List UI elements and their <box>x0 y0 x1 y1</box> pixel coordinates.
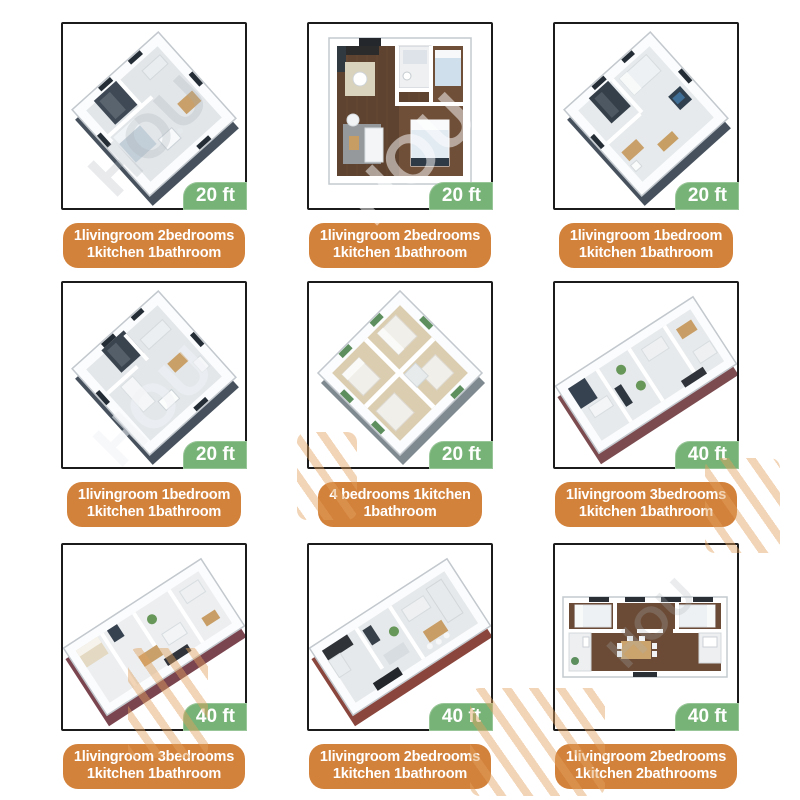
description-line: 1livingroom 2bedrooms <box>74 228 234 244</box>
description-line: 1kitchen 1bathroom <box>87 504 221 520</box>
floorplan-illustration <box>555 24 737 208</box>
size-badge: 20 ft <box>183 182 247 210</box>
room-description-label: 1livingroom 2bedrooms 1kitchen 2bathroom… <box>555 744 737 789</box>
room-description-label: 4 bedrooms 1kitchen 1bathroom <box>318 482 481 527</box>
description-line: 1kitchen 2bathrooms <box>575 766 717 782</box>
description-line: 1kitchen 1bathroom <box>579 245 713 261</box>
floorplan-image[interactable]: 20 ft <box>307 281 493 469</box>
floorplan-card: 20 ft 1livingroom 2bedrooms 1kitchen 1ba… <box>61 22 247 268</box>
description-line: 1kitchen 1bathroom <box>87 766 221 782</box>
floorplan-illustration <box>63 24 245 208</box>
floorplan-card: 40 ft 1livingroom 3bedrooms 1kitchen 1ba… <box>61 543 247 789</box>
room-description-label: 1livingroom 1bedroom 1kitchen 1bathroom <box>559 223 733 268</box>
description-line: 1livingroom 2bedrooms <box>320 749 480 765</box>
description-line: 1livingroom 3bedrooms <box>566 487 726 503</box>
description-line: 1livingroom 1bedroom <box>570 228 722 244</box>
description-line: 1bathroom <box>363 504 436 520</box>
description-line: 1kitchen 1bathroom <box>579 504 713 520</box>
floorplan-image[interactable]: 40 ft <box>553 543 739 731</box>
floorplan-image[interactable]: 40 ft <box>307 543 493 731</box>
floorplan-card: 20 ft 1livingroom 1bedroom 1kitchen 1bat… <box>61 281 247 527</box>
size-badge: 40 ft <box>675 441 739 469</box>
floorplan-card: 40 ft 1livingroom 2bedrooms 1kitchen 2ba… <box>553 543 739 789</box>
floorplan-image[interactable]: 40 ft <box>61 543 247 731</box>
room-description-label: 1livingroom 3bedrooms 1kitchen 1bathroom <box>555 482 737 527</box>
description-line: 4 bedrooms 1kitchen <box>329 487 470 503</box>
room-description-label: 1livingroom 2bedrooms 1kitchen 1bathroom <box>309 744 491 789</box>
floorplan-illustration <box>309 545 491 729</box>
floorplan-illustration <box>309 24 491 208</box>
room-description-label: 1livingroom 3bedrooms 1kitchen 1bathroom <box>63 744 245 789</box>
floorplan-illustration <box>309 283 491 467</box>
size-badge: 20 ft <box>183 441 247 469</box>
description-line: 1kitchen 1bathroom <box>333 245 467 261</box>
description-line: 1livingroom 2bedrooms <box>320 228 480 244</box>
size-badge: 20 ft <box>675 182 739 210</box>
description-line: 1kitchen 1bathroom <box>87 245 221 261</box>
size-badge: 40 ft <box>429 703 493 731</box>
size-badge: 20 ft <box>429 182 493 210</box>
floorplan-image[interactable]: 20 ft <box>553 22 739 210</box>
floorplan-illustration <box>555 545 737 729</box>
floorplan-image[interactable]: 20 ft <box>61 281 247 469</box>
room-description-label: 1livingroom 1bedroom 1kitchen 1bathroom <box>67 482 241 527</box>
floorplan-image[interactable]: 20 ft <box>307 22 493 210</box>
floorplan-card: 20 ft 1livingroom 2bedrooms 1kitchen 1ba… <box>307 22 493 268</box>
floorplan-card: 20 ft 4 bedrooms 1kitchen 1bathroom <box>307 281 493 527</box>
floorplan-gallery: HOU HOU HOU HOU 20 ft 1livingroom 2bedro… <box>0 0 800 800</box>
floorplan-image[interactable]: 40 ft <box>553 281 739 469</box>
floorplan-card: 40 ft 1livingroom 2bedrooms 1kitchen 1ba… <box>307 543 493 789</box>
floorplan-illustration <box>555 283 737 467</box>
floorplan-card: 20 ft 1livingroom 1bedroom 1kitchen 1bat… <box>553 22 739 268</box>
description-line: 1kitchen 1bathroom <box>333 766 467 782</box>
size-badge: 20 ft <box>429 441 493 469</box>
floorplan-image[interactable]: 20 ft <box>61 22 247 210</box>
room-description-label: 1livingroom 2bedrooms 1kitchen 1bathroom <box>63 223 245 268</box>
description-line: 1livingroom 2bedrooms <box>566 749 726 765</box>
size-badge: 40 ft <box>675 703 739 731</box>
floorplan-illustration <box>63 283 245 467</box>
floorplan-card: 40 ft 1livingroom 3bedrooms 1kitchen 1ba… <box>553 281 739 527</box>
room-description-label: 1livingroom 2bedrooms 1kitchen 1bathroom <box>309 223 491 268</box>
floorplan-illustration <box>63 545 245 729</box>
description-line: 1livingroom 1bedroom <box>78 487 230 503</box>
description-line: 1livingroom 3bedrooms <box>74 749 234 765</box>
size-badge: 40 ft <box>183 703 247 731</box>
